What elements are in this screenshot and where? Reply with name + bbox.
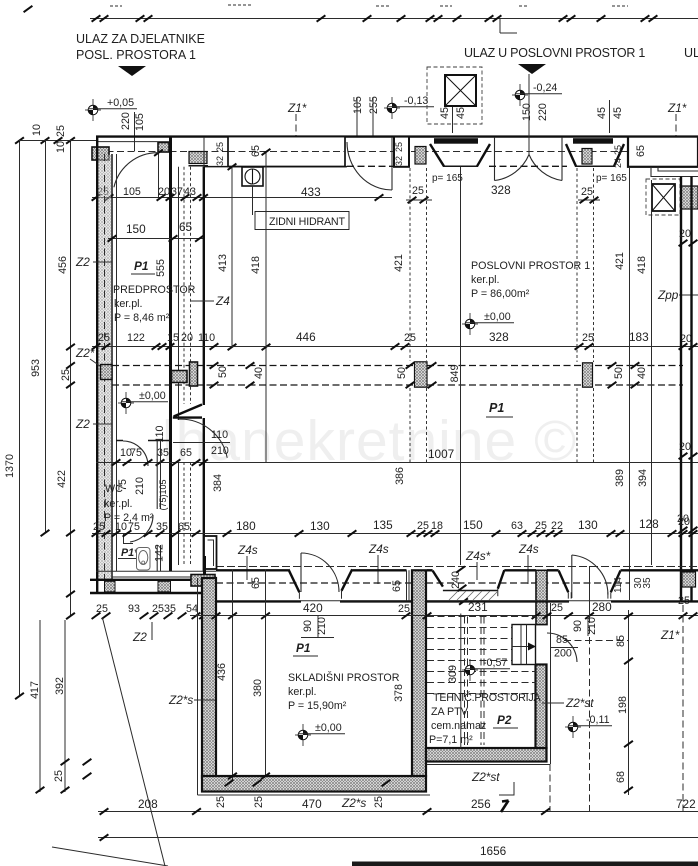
svg-text:35: 35 — [642, 577, 653, 589]
svg-text:105: 105 — [123, 186, 141, 198]
svg-text:389: 389 — [614, 469, 626, 487]
svg-text:ker.pl.: ker.pl. — [114, 298, 143, 310]
svg-text:470: 470 — [302, 797, 322, 811]
svg-text:65: 65 — [180, 447, 192, 459]
svg-text:ker.pl.: ker.pl. — [471, 274, 500, 286]
svg-text:418: 418 — [636, 256, 648, 274]
svg-text:328: 328 — [489, 330, 509, 344]
svg-text:255: 255 — [368, 96, 380, 114]
svg-text:15: 15 — [167, 332, 179, 344]
svg-text:25: 25 — [551, 602, 563, 614]
svg-text:P = 8,46 m²: P = 8,46 m² — [114, 312, 170, 324]
svg-text:210: 210 — [211, 445, 229, 457]
svg-text:Z2: Z2 — [75, 417, 90, 431]
svg-text:256: 256 — [471, 797, 491, 811]
svg-text:65: 65 — [391, 580, 403, 592]
svg-text:309: 309 — [447, 665, 459, 683]
svg-text:105: 105 — [352, 96, 364, 114]
svg-text:418: 418 — [250, 256, 262, 274]
svg-text:130: 130 — [578, 518, 598, 532]
svg-text:420: 420 — [303, 601, 323, 615]
svg-text:Zpp: Zpp — [657, 288, 679, 302]
svg-text:40: 40 — [253, 367, 265, 379]
svg-text:Z2*s: Z2*s — [168, 693, 193, 707]
svg-text:142: 142 — [154, 544, 166, 562]
svg-text:25: 25 — [98, 332, 110, 344]
svg-text:25: 25 — [581, 186, 593, 198]
svg-text:90: 90 — [572, 620, 584, 632]
svg-text:20: 20 — [678, 516, 690, 528]
svg-text:417: 417 — [29, 681, 41, 699]
svg-text:953: 953 — [30, 359, 42, 377]
svg-text:POSL. PROSTORA 1: POSL. PROSTORA 1 — [76, 48, 196, 62]
svg-text:220: 220 — [120, 112, 132, 130]
svg-text:231: 231 — [468, 600, 488, 614]
svg-text:849: 849 — [449, 365, 461, 383]
svg-text:135: 135 — [373, 518, 393, 532]
svg-text:63: 63 — [511, 520, 523, 532]
svg-text:105: 105 — [134, 113, 146, 131]
svg-text:25: 25 — [394, 142, 404, 152]
svg-text:Z2*: Z2* — [75, 346, 95, 360]
svg-text:Z2*s: Z2*s — [341, 796, 366, 810]
svg-text:25: 25 — [404, 332, 416, 344]
svg-text:P = 15,90m²: P = 15,90m² — [288, 700, 347, 712]
svg-text:Z4: Z4 — [215, 294, 230, 308]
svg-text:421: 421 — [393, 254, 405, 272]
svg-text:20: 20 — [679, 228, 691, 240]
svg-text:ULAZ ZA DJELATNIKE: ULAZ ZA DJELATNIKE — [76, 32, 205, 46]
svg-text:555: 555 — [155, 259, 167, 277]
svg-text:114: 114 — [613, 577, 624, 593]
svg-text:ker.pl.: ker.pl. — [104, 498, 133, 510]
svg-text:-0,24: -0,24 — [533, 82, 557, 94]
svg-text:P1: P1 — [489, 401, 504, 415]
svg-text:50: 50 — [613, 367, 625, 379]
svg-text:40: 40 — [636, 367, 648, 379]
svg-text:183: 183 — [629, 330, 649, 344]
svg-text:20: 20 — [679, 441, 691, 453]
svg-text:25: 25 — [253, 796, 265, 808]
svg-text:(75)105: (75)105 — [158, 479, 168, 510]
svg-text:10: 10 — [31, 124, 43, 136]
svg-text:25: 25 — [582, 332, 594, 344]
svg-text:110: 110 — [198, 332, 215, 344]
svg-text:180: 180 — [236, 519, 256, 533]
svg-text:32: 32 — [394, 156, 404, 166]
svg-text:Z2: Z2 — [132, 630, 147, 644]
svg-text:25: 25 — [417, 520, 429, 532]
svg-text:lhanekretnine ©: lhanekretnine © — [162, 409, 577, 473]
svg-text:p= 165: p= 165 — [432, 173, 463, 184]
svg-text:93: 93 — [128, 603, 140, 615]
svg-text:75: 75 — [117, 479, 129, 491]
svg-text:p= 165: p= 165 — [596, 173, 627, 184]
svg-text:25: 25 — [60, 369, 72, 381]
svg-text:1656: 1656 — [480, 844, 507, 858]
svg-text:50: 50 — [217, 366, 229, 378]
svg-text:±0,00: ±0,00 — [315, 722, 342, 734]
svg-text:18: 18 — [431, 520, 443, 532]
svg-text:198: 198 — [617, 696, 629, 714]
svg-text:45: 45 — [596, 107, 608, 119]
svg-text:ZA PTV: ZA PTV — [431, 706, 469, 718]
svg-text:386: 386 — [394, 467, 406, 485]
svg-text:280: 280 — [592, 600, 612, 614]
svg-text:P=7,1 m²: P=7,1 m² — [429, 734, 473, 746]
svg-text:PREDPROSTOR: PREDPROSTOR — [113, 284, 196, 296]
svg-text:25: 25 — [215, 142, 225, 152]
svg-text:±0,00: ±0,00 — [139, 390, 166, 402]
svg-text:SKLADIŠNI PROSTOR: SKLADIŠNI PROSTOR — [288, 671, 400, 684]
svg-text:456: 456 — [57, 256, 69, 274]
svg-text:25: 25 — [53, 770, 65, 782]
svg-text:32: 32 — [215, 156, 225, 166]
svg-text:122: 122 — [127, 332, 145, 344]
svg-text:TEHNIČ.PROSTORIJA: TEHNIČ.PROSTORIJA — [433, 691, 542, 704]
svg-text:25: 25 — [96, 603, 108, 615]
svg-text:200: 200 — [554, 648, 572, 660]
svg-text:110: 110 — [211, 429, 228, 441]
svg-text:25: 25 — [373, 796, 385, 808]
svg-text:+0,05: +0,05 — [107, 97, 134, 109]
svg-text:ULAZ: ULAZ — [684, 46, 698, 60]
svg-text:433: 433 — [301, 185, 321, 199]
svg-text:150: 150 — [463, 518, 483, 532]
svg-text:24: 24 — [613, 158, 623, 168]
svg-text:Z1*: Z1* — [287, 101, 307, 115]
svg-text:25: 25 — [678, 595, 690, 607]
svg-text:220: 220 — [537, 103, 549, 121]
svg-text:394: 394 — [637, 469, 649, 487]
svg-text:25: 25 — [412, 185, 424, 197]
svg-text:P2: P2 — [497, 713, 512, 727]
svg-text:P1: P1 — [296, 641, 310, 655]
svg-text:Z4s*: Z4s* — [465, 549, 491, 563]
svg-text:35: 35 — [157, 447, 169, 459]
svg-text:240: 240 — [450, 571, 462, 589]
svg-text:±0,00: ±0,00 — [484, 311, 511, 323]
svg-text:436: 436 — [216, 663, 228, 681]
svg-text:45: 45 — [455, 107, 467, 119]
svg-text:ker.pl.: ker.pl. — [288, 686, 317, 698]
svg-text:210: 210 — [134, 477, 146, 495]
svg-text:68: 68 — [615, 771, 627, 783]
svg-text:421: 421 — [614, 252, 626, 270]
svg-text:422: 422 — [56, 470, 68, 488]
svg-text:378: 378 — [393, 684, 405, 702]
svg-text:85: 85 — [615, 635, 627, 647]
svg-text:446: 446 — [296, 330, 316, 344]
svg-text:ULAZ U POSLOVNI PROSTOR 1: ULAZ U POSLOVNI PROSTOR 1 — [464, 46, 645, 60]
svg-text:Z4s: Z4s — [368, 542, 389, 556]
svg-text:128: 128 — [639, 517, 659, 531]
svg-text:54: 54 — [186, 603, 198, 615]
svg-text:25: 25 — [55, 125, 67, 137]
svg-text:75: 75 — [130, 447, 142, 459]
svg-text:Z2: Z2 — [75, 255, 90, 269]
svg-text:-0,13: -0,13 — [404, 95, 428, 107]
svg-text:150: 150 — [521, 103, 533, 121]
svg-text:Z2*st: Z2*st — [471, 770, 500, 784]
svg-text:Z1*: Z1* — [667, 101, 687, 115]
svg-text:ZIDNI HIDRANT: ZIDNI HIDRANT — [269, 216, 345, 228]
svg-text:25: 25 — [215, 796, 227, 808]
svg-text:722: 722 — [676, 797, 696, 811]
svg-text:25: 25 — [613, 145, 623, 155]
svg-text:20: 20 — [181, 332, 193, 344]
svg-text:328: 328 — [491, 183, 511, 197]
svg-text:130: 130 — [310, 519, 330, 533]
svg-text:10: 10 — [115, 521, 127, 533]
svg-text:150: 150 — [126, 222, 146, 236]
svg-text:-0,57: -0,57 — [483, 657, 507, 669]
svg-text:Z4s: Z4s — [518, 542, 539, 556]
svg-text:90: 90 — [302, 620, 314, 632]
svg-text:P1: P1 — [134, 259, 148, 273]
svg-text:POSLOVNI PROSTOR 1: POSLOVNI PROSTOR 1 — [471, 260, 590, 272]
svg-text:Z4s: Z4s — [237, 543, 258, 557]
svg-text:45: 45 — [439, 107, 451, 119]
svg-text:10: 10 — [55, 141, 67, 153]
svg-text:65: 65 — [250, 577, 262, 589]
svg-text:1007: 1007 — [428, 447, 454, 461]
svg-text:65: 65 — [635, 145, 647, 157]
svg-text:1370: 1370 — [4, 454, 16, 478]
svg-text:45: 45 — [612, 107, 624, 119]
svg-text:392: 392 — [54, 677, 66, 695]
svg-text:Z1*: Z1* — [660, 628, 680, 642]
svg-text:P = 86,00m²: P = 86,00m² — [471, 288, 530, 300]
svg-text:380: 380 — [252, 679, 264, 697]
svg-text:cem.namaz: cem.namaz — [431, 720, 486, 732]
svg-text:384: 384 — [212, 474, 224, 492]
svg-text:65: 65 — [250, 145, 262, 157]
svg-text:413: 413 — [217, 254, 229, 272]
